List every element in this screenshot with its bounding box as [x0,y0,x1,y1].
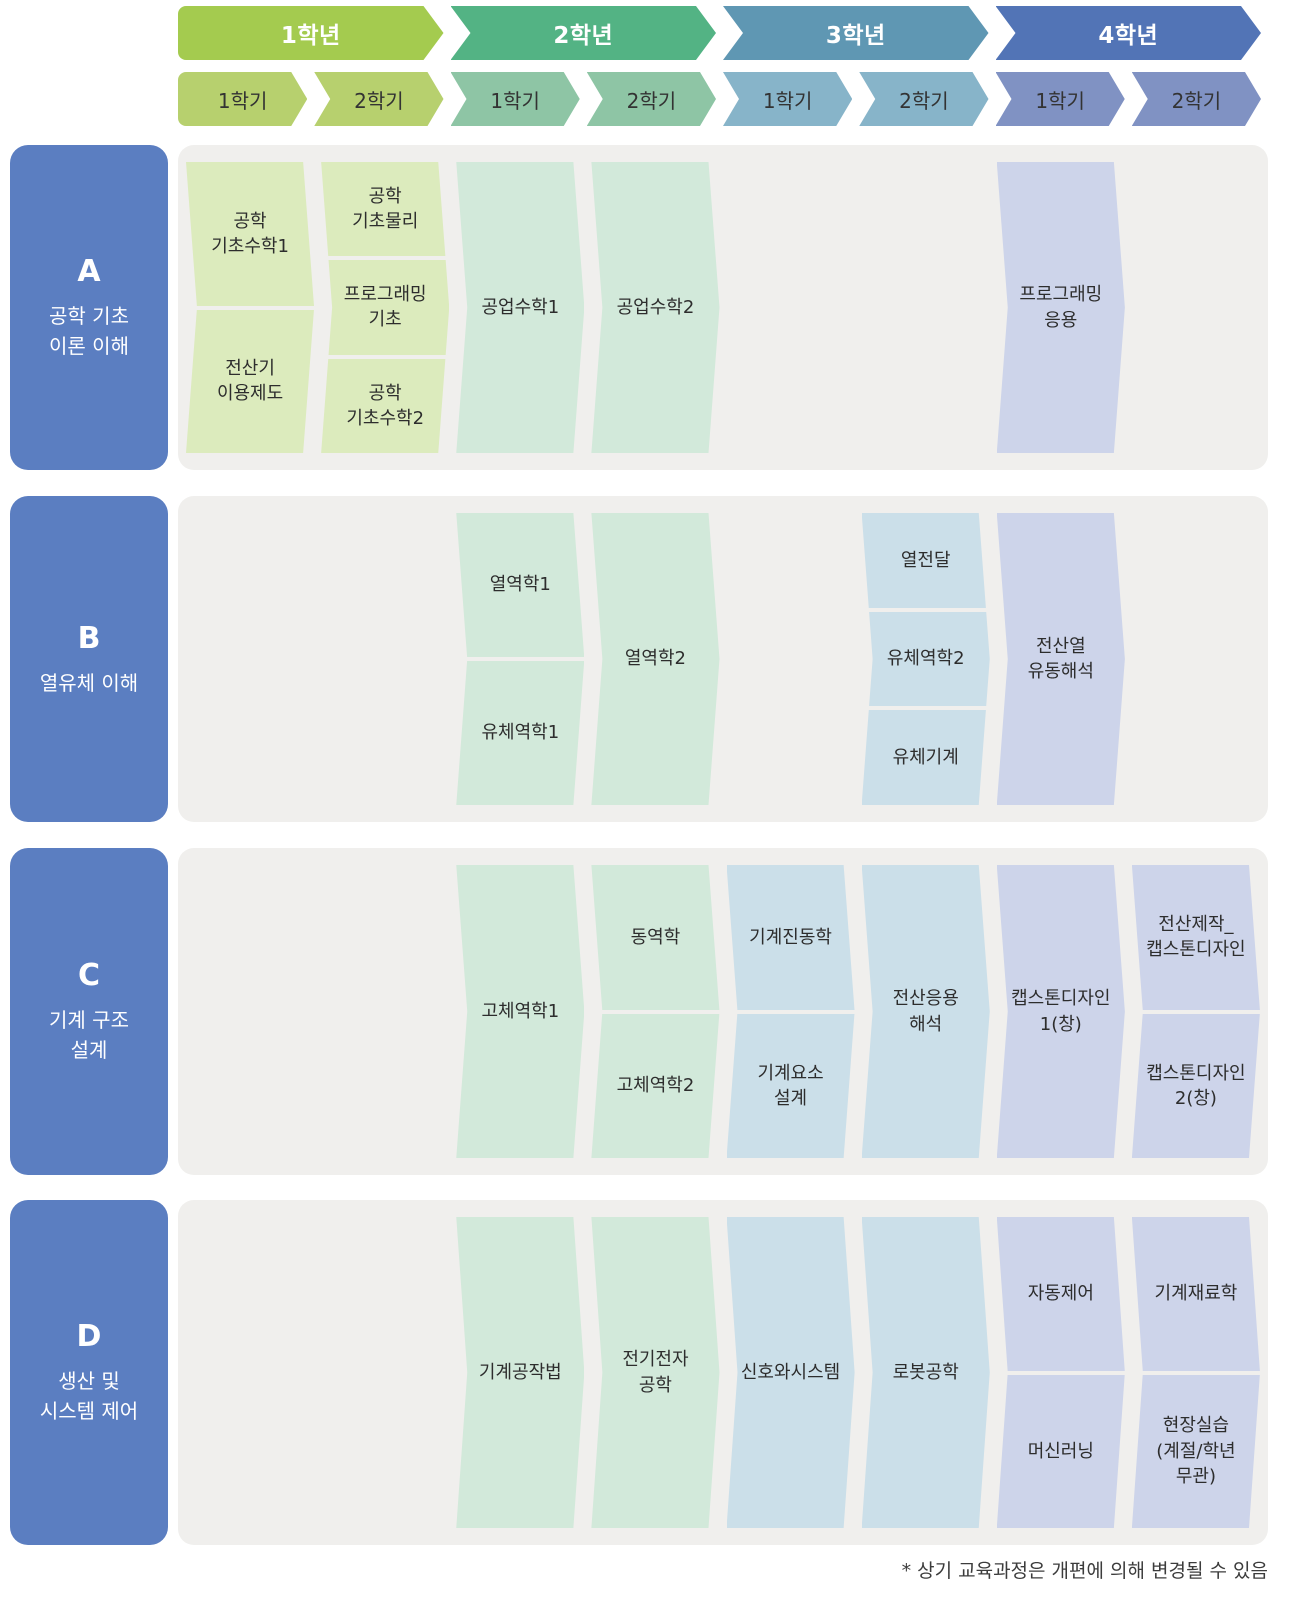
course-box: 캡스톤디자인 2(창) [1132,1014,1260,1159]
course-box: 프로그래밍 응용 [997,162,1125,453]
course-cell: 기계진동학기계요소 설계 [727,865,855,1158]
row-panel-C: 고체역학1동역학고체역학2기계진동학기계요소 설계전산응용 해석캡스톤디자인 1… [178,848,1268,1175]
course-box: 유체역학1 [456,661,584,805]
course-box: 전산제작_ 캡스톤디자인 [1132,865,1260,1010]
course-label: 프로그래밍 기초 [344,282,427,332]
row-label-C: C기계 구조 설계 [10,848,168,1175]
year-header-3: 3학년 [723,6,989,60]
semester-header-y2s2: 2학기 [587,72,716,126]
row-title: 공학 기초 이론 이해 [49,301,129,361]
course-box: 기계요소 설계 [727,1014,855,1159]
course-label: 고체역학2 [617,1073,695,1098]
course-box: 현장실습 (계절/학년 무관) [1132,1375,1260,1529]
course-cell: 전산제작_ 캡스톤디자인캡스톤디자인 2(창) [1132,865,1260,1158]
course-box: 공업수학2 [591,162,719,453]
course-cell: 공학 기초물리프로그래밍 기초공학 기초수학2 [321,162,449,453]
course-box: 유체역학2 [862,612,990,707]
course-cell: 프로그래밍 응용 [997,162,1125,453]
course-box: 기계진동학 [727,865,855,1010]
year-header-2: 2학년 [451,6,717,60]
row-letter: C [78,958,100,993]
row-letter: B [78,621,101,656]
row-panel-B: 열역학1유체역학1열역학2열전달유체역학2유체기계전산열 유동해석 [178,496,1268,822]
course-box: 프로그래밍 기초 [321,260,449,354]
course-label: 로봇공학 [893,1360,959,1385]
footnote: * 상기 교육과정은 개편에 의해 변경될 수 있음 [902,1556,1268,1583]
course-box: 전산열 유동해석 [997,513,1125,805]
year-header-4: 4학년 [996,6,1262,60]
course-label: 전산기 이용제도 [217,356,283,406]
course-cell: 전기전자 공학 [591,1217,719,1528]
course-label: 유체역학2 [887,646,965,671]
course-label: 기계진동학 [749,925,832,950]
course-cell: 공업수학2 [591,162,719,453]
course-cell: 열전달유체역학2유체기계 [862,513,990,805]
row-letter: A [77,254,100,289]
course-cell: 전산열 유동해석 [997,513,1125,805]
course-label: 신호와시스템 [741,1360,840,1385]
course-box: 신호와시스템 [727,1217,855,1528]
year-header-1: 1학년 [178,6,444,60]
semester-header-y4s2: 2학기 [1132,72,1261,126]
course-box: 로봇공학 [862,1217,990,1528]
row-panel-D: 기계공작법전기전자 공학신호와시스템로봇공학자동제어머신러닝기계재료학현장실습 … [178,1200,1268,1545]
course-label: 유체역학1 [481,720,559,745]
course-box: 전기전자 공학 [591,1217,719,1528]
semester-header-y3s1: 1학기 [723,72,852,126]
course-cell: 공업수학1 [456,162,584,453]
row-title: 열유체 이해 [40,668,138,698]
course-box: 공학 기초물리 [321,162,449,256]
row-title: 생산 및 시스템 제어 [40,1366,138,1426]
course-box: 공업수학1 [456,162,584,453]
course-box: 열역학2 [591,513,719,805]
course-box: 자동제어 [997,1217,1125,1371]
course-box: 기계공작법 [456,1217,584,1528]
course-label: 열역학2 [625,646,686,671]
course-label: 전산열 유동해석 [1028,634,1094,684]
course-cell: 신호와시스템 [727,1217,855,1528]
row-letter: D [77,1319,102,1354]
course-label: 현장실습 (계절/학년 무관) [1156,1413,1235,1489]
course-box: 열역학1 [456,513,584,657]
course-label: 프로그래밍 응용 [1019,282,1102,332]
semester-header-y2s1: 1학기 [451,72,580,126]
row-title: 기계 구조 설계 [49,1005,129,1065]
course-label: 전산응용 해석 [893,986,959,1036]
course-cell: 열역학2 [591,513,719,805]
course-cell: 공학 기초수학1전산기 이용제도 [186,162,314,453]
course-label: 기계재료학 [1155,1281,1238,1306]
semester-header-band: 1학기2학기1학기2학기1학기2학기1학기2학기 [178,72,1268,126]
semester-header-y4s1: 1학기 [996,72,1125,126]
course-label: 캡스톤디자인 1(창) [1011,986,1110,1036]
year-header-band: 1학년2학년3학년4학년 [178,6,1268,60]
semester-header-y1s2: 2학기 [314,72,443,126]
course-box: 고체역학2 [591,1014,719,1159]
course-cell: 로봇공학 [862,1217,990,1528]
course-box: 열전달 [862,513,990,608]
course-label: 전산제작_ 캡스톤디자인 [1146,912,1245,962]
course-box: 공학 기초수학2 [321,359,449,453]
row-label-D: D생산 및 시스템 제어 [10,1200,168,1545]
course-label: 고체역학1 [481,999,559,1024]
semester-header-y3s2: 2학기 [859,72,988,126]
course-box: 기계재료학 [1132,1217,1260,1371]
course-label: 공학 기초물리 [352,184,418,234]
course-label: 머신러닝 [1028,1439,1094,1464]
course-box: 고체역학1 [456,865,584,1158]
course-box: 머신러닝 [997,1375,1125,1529]
course-label: 공업수학1 [481,295,559,320]
course-label: 열전달 [901,548,951,573]
course-box: 전산기 이용제도 [186,310,314,454]
course-box: 동역학 [591,865,719,1010]
row-label-B: B열유체 이해 [10,496,168,822]
course-cell: 전산응용 해석 [862,865,990,1158]
course-cell: 자동제어머신러닝 [997,1217,1125,1528]
row-label-A: A공학 기초 이론 이해 [10,145,168,470]
course-cell: 캡스톤디자인 1(창) [997,865,1125,1158]
course-box: 전산응용 해석 [862,865,990,1158]
course-label: 열역학1 [490,572,551,597]
curriculum-roadmap: 1학년2학년3학년4학년 1학기2학기1학기2학기1학기2학기1학기2학기 A공… [0,0,1300,1600]
course-box: 캡스톤디자인 1(창) [997,865,1125,1158]
course-cell: 기계공작법 [456,1217,584,1528]
course-label: 전기전자 공학 [622,1347,688,1397]
course-cell: 고체역학1 [456,865,584,1158]
row-panel-A: 공학 기초수학1전산기 이용제도공학 기초물리프로그래밍 기초공학 기초수학2공… [178,145,1268,470]
course-label: 캡스톤디자인 2(창) [1146,1061,1245,1111]
course-label: 공학 기초수학2 [346,381,424,431]
course-cell: 기계재료학현장실습 (계절/학년 무관) [1132,1217,1260,1528]
semester-header-y1s1: 1학기 [178,72,307,126]
course-label: 유체기계 [893,745,959,770]
course-box: 공학 기초수학1 [186,162,314,306]
course-label: 기계요소 설계 [757,1061,823,1111]
course-cell: 동역학고체역학2 [591,865,719,1158]
course-label: 공학 기초수학1 [211,209,289,259]
course-label: 자동제어 [1028,1281,1094,1306]
course-cell: 열역학1유체역학1 [456,513,584,805]
course-label: 기계공작법 [479,1360,562,1385]
course-box: 유체기계 [862,710,990,805]
course-label: 공업수학2 [617,295,695,320]
course-label: 동역학 [631,925,681,950]
